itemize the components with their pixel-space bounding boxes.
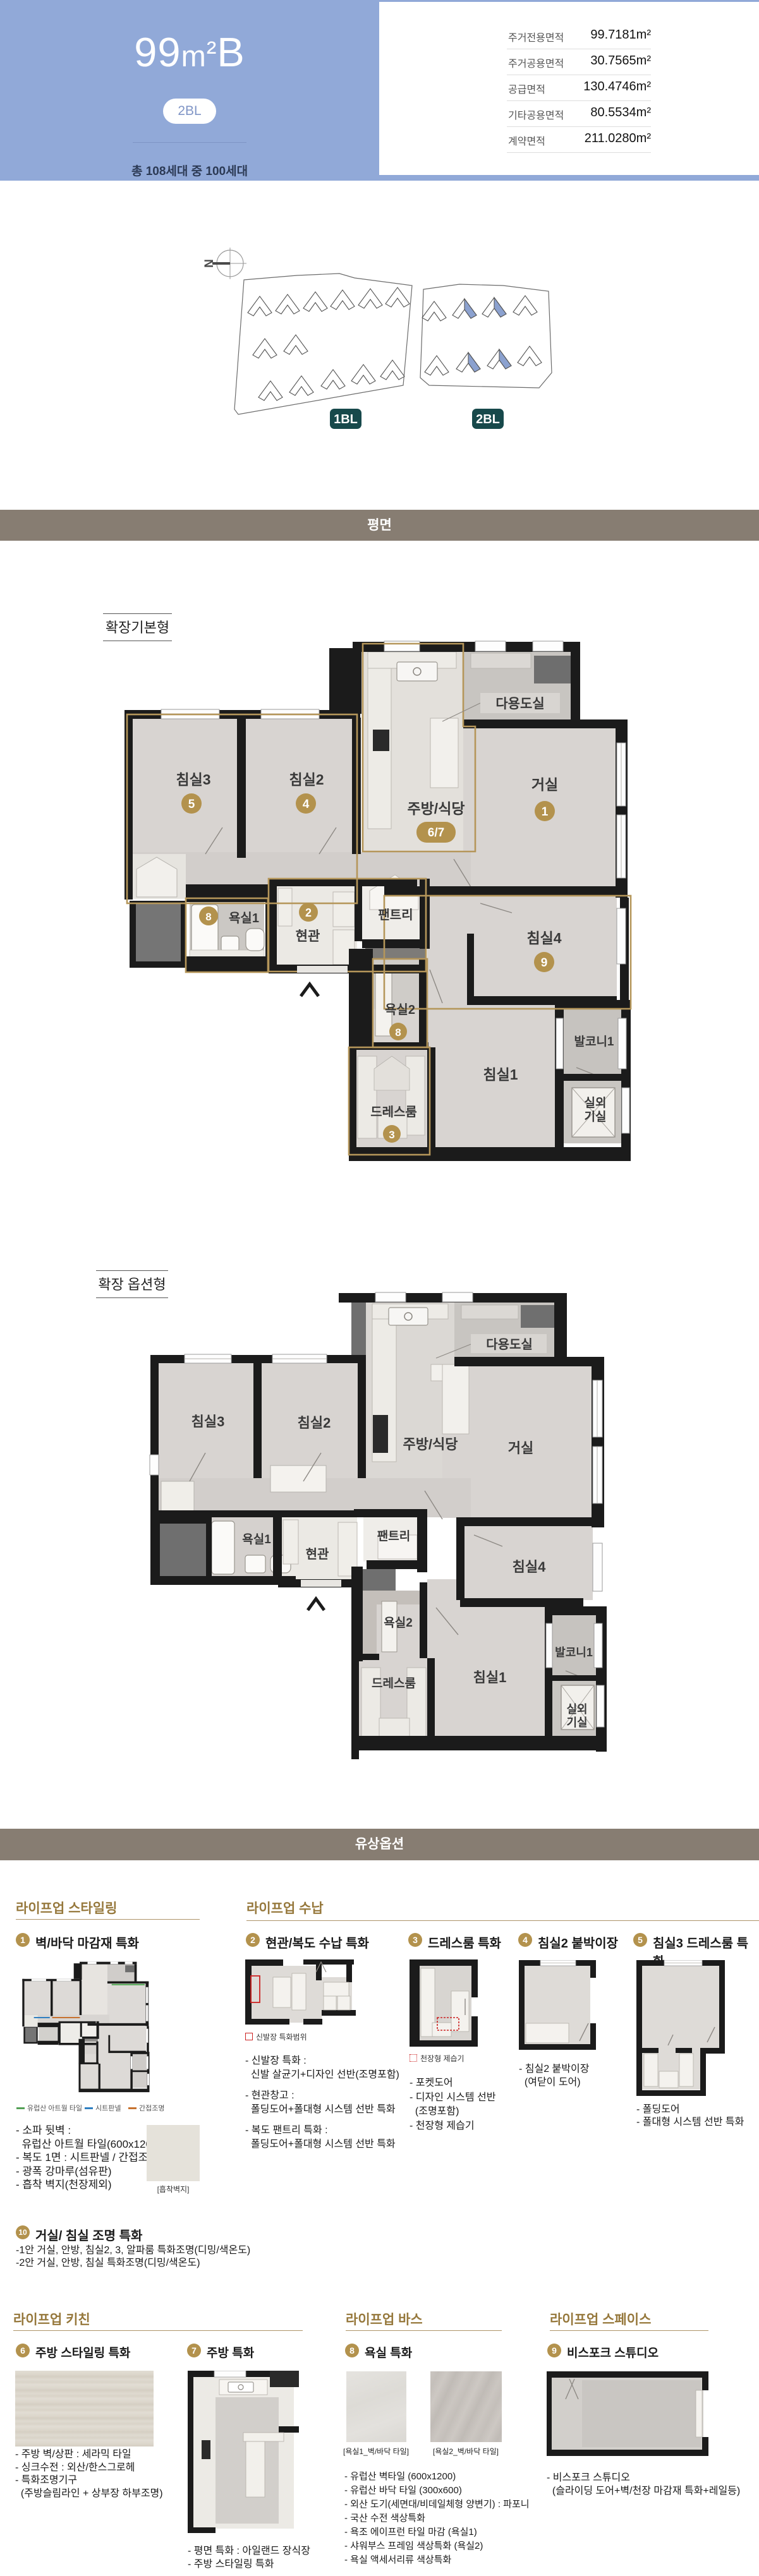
svg-text:팬트리: 팬트리	[377, 1529, 410, 1543]
svg-text:침실2: 침실2	[298, 1415, 331, 1431]
svg-text:9: 9	[541, 956, 548, 970]
svg-text:실외: 실외	[566, 1703, 587, 1716]
svg-text:거실: 거실	[531, 776, 558, 793]
svg-text:3: 3	[389, 1129, 394, 1141]
svg-text:침실2: 침실2	[289, 771, 324, 788]
svg-text:2: 2	[305, 906, 312, 919]
svg-text:거실: 거실	[508, 1440, 533, 1456]
svg-text:5: 5	[188, 798, 195, 811]
svg-text:침실4: 침실4	[513, 1559, 546, 1575]
svg-text:2BL: 2BL	[476, 412, 500, 426]
svg-text:드레스룸: 드레스룸	[370, 1105, 417, 1119]
svg-text:침실1: 침실1	[483, 1066, 518, 1083]
svg-text:욕실1: 욕실1	[242, 1532, 271, 1546]
svg-text:발코니1: 발코니1	[574, 1035, 614, 1049]
svg-text:욕실2: 욕실2	[385, 1002, 415, 1017]
svg-text:8: 8	[205, 911, 211, 923]
svg-text:주방/식당: 주방/식당	[407, 800, 465, 817]
svg-text:실외: 실외	[585, 1096, 607, 1110]
svg-text:기실: 기실	[585, 1110, 607, 1124]
svg-text:발코니1: 발코니1	[555, 1646, 593, 1659]
svg-text:침실3: 침실3	[191, 1414, 225, 1429]
svg-text:욕실2: 욕실2	[384, 1616, 413, 1630]
svg-text:1: 1	[542, 805, 549, 819]
svg-text:침실4: 침실4	[526, 930, 561, 946]
svg-text:팬트리: 팬트리	[378, 908, 413, 922]
svg-text:1BL: 1BL	[334, 412, 358, 426]
svg-text:6/7: 6/7	[428, 826, 444, 840]
svg-text:다용도실: 다용도실	[495, 697, 544, 711]
svg-text:N: N	[203, 259, 216, 268]
svg-text:기실: 기실	[566, 1716, 587, 1729]
svg-text:욕실1: 욕실1	[229, 911, 259, 925]
svg-text:침실3: 침실3	[176, 771, 210, 788]
svg-text:침실1: 침실1	[473, 1670, 507, 1685]
svg-text:4: 4	[303, 798, 310, 811]
svg-text:다용도실: 다용도실	[486, 1337, 533, 1352]
svg-text:현관: 현관	[296, 929, 320, 944]
svg-text:8: 8	[395, 1026, 401, 1038]
svg-text:주방/식당: 주방/식당	[403, 1436, 458, 1452]
svg-text:현관: 현관	[306, 1547, 329, 1562]
svg-text:드레스룸: 드레스룸	[372, 1676, 416, 1690]
